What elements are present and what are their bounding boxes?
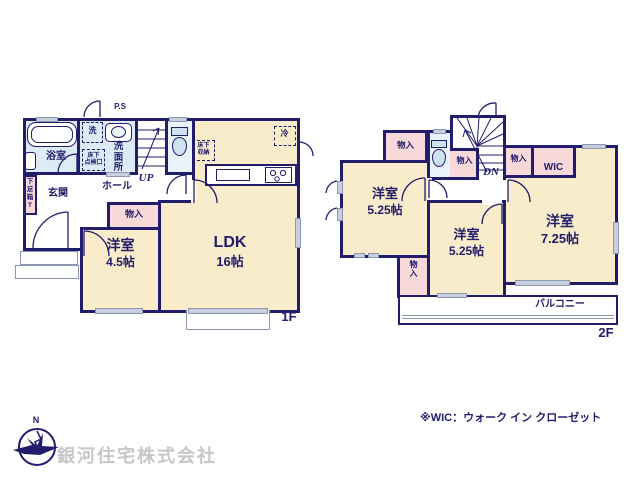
up-label: UP (134, 172, 158, 184)
door-arc-hall-ldk (194, 180, 217, 203)
fridge-label: 冷 (276, 130, 293, 139)
room-c-size: 7.25帖 (505, 232, 615, 247)
door-arc-kitchen-back (299, 142, 313, 157)
underfloor-hatch-label: 床下 点検口 (82, 153, 105, 166)
door-arc-entrance (33, 212, 69, 248)
window-room-c-balcony (515, 280, 570, 286)
compass-icon (12, 422, 62, 472)
room-b-name: 洋室 (427, 228, 506, 243)
closet-mid-label: 物入 (503, 155, 534, 164)
closet-bl-label: 物 入 (397, 261, 430, 279)
window-ldk-terrace (188, 308, 268, 314)
window-room-a-bottom-2 (368, 253, 379, 258)
balcony-label: バルコニー (505, 299, 615, 310)
west45-size: 4.5帖 (80, 256, 161, 269)
hall-label: ホール (97, 181, 137, 192)
stairs-1f-treads (138, 121, 165, 172)
ldk-name: LDK (180, 234, 280, 252)
door-arc-stairs-top (478, 103, 496, 118)
casement-arc-1 (325, 180, 338, 194)
dn-label: DN (478, 166, 504, 178)
porch-step-1 (20, 251, 78, 265)
door-arc-room-b (482, 204, 503, 225)
washroom-label: 洗 面 所 (110, 142, 127, 174)
washer-label: 洗 (84, 127, 101, 136)
west45-name: 洋室 (80, 238, 161, 254)
toilet-tank-2f (431, 140, 447, 148)
ldk-size: 16帖 (180, 255, 280, 270)
wash-basin-bowl (111, 126, 126, 138)
bathroom-label: 浴室 (36, 151, 76, 162)
porch-step-2 (15, 265, 79, 279)
room-a-size: 5.25帖 (340, 204, 430, 217)
kitchen-sink (216, 169, 250, 181)
floor-plan-canvas: P.S 浴室 洗 洗 面 所 床下 点検口 床下 収納 冷 UP ホール 玄関 … (0, 0, 640, 480)
balcony-railing (402, 315, 614, 319)
room-a-name: 洋室 (340, 187, 430, 202)
floor-label-1f: 1F (275, 310, 303, 325)
window-ldk-right (295, 218, 301, 248)
ps-label: P.S (108, 103, 132, 112)
window-west45-bottom (95, 308, 143, 314)
shoe-box-label: 下 足 箱 T (24, 178, 36, 211)
stove-burners-icon (265, 167, 292, 183)
window-room-a-bottom-1 (354, 253, 365, 258)
room-b-size: 5.25帖 (427, 245, 506, 258)
company-name: 銀河住宅株式会社 (57, 446, 277, 466)
floor-label-2f: 2F (592, 326, 620, 341)
door-arc-room-c (508, 180, 530, 202)
window-room-c-top (582, 144, 606, 149)
underfloor-storage-label: 床下 収納 (192, 143, 215, 156)
wic-note: ※WIC：ウォーク イン クローゼット (420, 412, 640, 424)
toilet-tank-1f (171, 127, 188, 136)
window-toilet-top-1f (169, 117, 187, 122)
window-toilet-2f (433, 129, 446, 134)
room-western-c-extension (573, 145, 618, 178)
wic-label: WIC (531, 162, 576, 173)
bath-counter (25, 152, 36, 170)
bathtub-inner (31, 126, 73, 143)
compass-north-label: N (30, 415, 42, 425)
door-arc-toilet-1f (167, 175, 187, 195)
door-arc-toilet-2f (429, 180, 448, 199)
closet-tl-label: 物入 (383, 141, 428, 151)
casement-arc-2 (325, 207, 338, 221)
entrance-label: 玄関 (40, 188, 76, 199)
door-arc-ps (84, 101, 101, 118)
closet-1f-label: 物入 (107, 209, 161, 219)
window-room-b-bottom (437, 293, 467, 298)
room-c-name: 洋室 (505, 214, 615, 230)
closet-under-stairs-label: 物入 (450, 157, 479, 166)
